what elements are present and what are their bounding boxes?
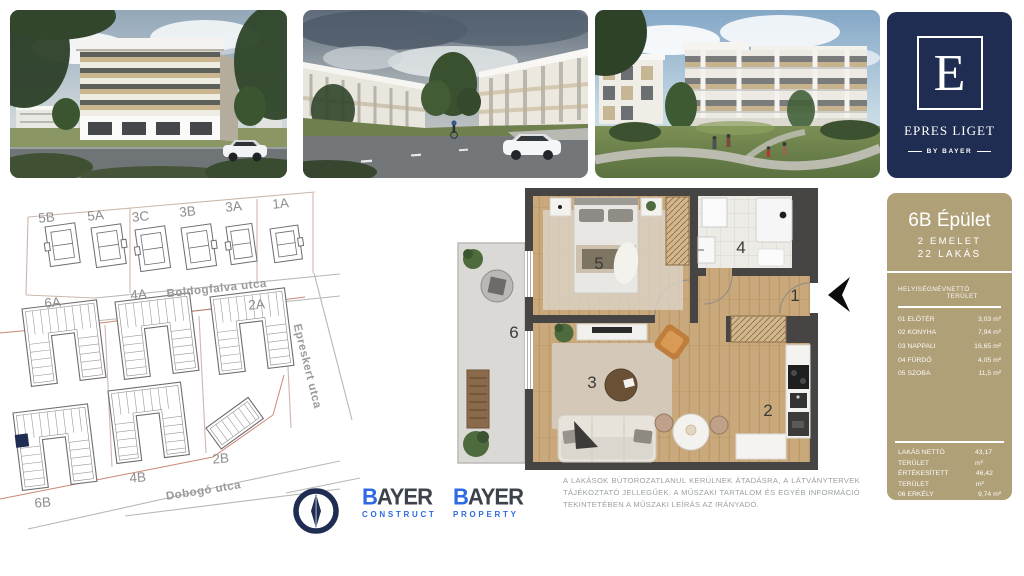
bayer-construct-logo: BAYER CONSTRUCT <box>362 486 437 519</box>
room-area: 7,94 m² <box>978 326 1001 340</box>
svg-text:Dobogó utca: Dobogó utca <box>165 479 242 503</box>
svg-text:4: 4 <box>736 238 745 257</box>
highlighted-unit-marker <box>15 433 29 447</box>
svg-text:1A: 1A <box>272 195 290 212</box>
bayer-construct-wordmark: BAYER <box>362 486 437 509</box>
room-name: 02 KONYHA <box>898 326 936 340</box>
room-area: 16,65 m² <box>974 340 1001 354</box>
disclaimer-text: A LAKÁSOK BÚTOROZATLANUL KERÜLNEK ÁTADÁS… <box>563 475 860 512</box>
summary-row: LAKÁS NETTÓ TERÜLET 43,17 m² <box>898 448 1001 469</box>
table-row: 05 SZOBA 11,5 m² <box>898 367 1001 381</box>
svg-text:4A: 4A <box>130 286 148 302</box>
svg-text:2B: 2B <box>212 450 230 466</box>
svg-text:3B: 3B <box>179 203 197 220</box>
summary-area: 9,74 m² <box>978 490 1001 501</box>
summary-table: LAKÁS NETTÓ TERÜLET 43,17 m² ÉRTÉKESÍTET… <box>898 448 1001 501</box>
entry-arrow-icon <box>828 277 850 312</box>
main-building <box>683 42 867 130</box>
room-area: 4,05 m² <box>978 354 1001 368</box>
table-row: 03 NAPPALI 16,65 m² <box>898 340 1001 354</box>
room-name: 05 SZOBA <box>898 367 931 381</box>
svg-text:5B: 5B <box>38 209 56 226</box>
brand-monogram-frame: E <box>917 36 983 110</box>
svg-text:6B: 6B <box>34 494 52 510</box>
brand-title: EPRES LIGET <box>887 123 1012 139</box>
building-footprints-small <box>42 223 305 272</box>
unit-data-panel: 6B Épület 2 EMELET 22 LAKÁS HELYISÉGNÉV … <box>887 193 1012 500</box>
floorplan: 1 2 3 4 5 6 <box>440 185 860 480</box>
byline-rule-left <box>908 151 922 152</box>
apartment-building <box>76 38 238 142</box>
bedroom-furniture <box>543 197 689 310</box>
svg-text:3: 3 <box>587 373 596 392</box>
room-area: 3,03 m² <box>978 313 1001 327</box>
unit-count-line: 22 LAKÁS <box>898 249 1001 260</box>
table-row: 04 FÜRDŐ 4,05 m² <box>898 354 1001 368</box>
svg-text:Epreskert utca: Epreskert utca <box>291 323 324 410</box>
brand-byline: BY BAYER <box>887 148 1012 155</box>
svg-text:5A: 5A <box>87 207 105 224</box>
summary-name: ÉRTÉKESÍTETT TERÜLET <box>898 469 976 490</box>
svg-text:2A: 2A <box>248 296 266 312</box>
byline-rule-right <box>977 151 991 152</box>
panel-divider-bottom <box>895 441 1004 443</box>
room-area: 11,5 m² <box>978 367 1001 381</box>
render-photo-street-view <box>303 10 588 178</box>
bayer-property-division: PROPERTY <box>453 511 523 519</box>
room-table-header-rule <box>898 306 1001 308</box>
building-footprint-6b <box>12 404 97 491</box>
summary-row: 06 ERKÉLY 9,74 m² <box>898 490 1001 501</box>
bayer-rest: AYER <box>377 484 432 510</box>
summary-area: 46,42 m² <box>976 469 1001 490</box>
svg-text:6: 6 <box>509 323 518 342</box>
room-table: 01 ELŐTÉR 3,03 m² 02 KONYHA 7,94 m² 03 N… <box>898 313 1001 382</box>
balcony <box>458 243 525 463</box>
svg-text:1: 1 <box>790 286 799 305</box>
unit-building-title: 6B Épület <box>898 210 1001 232</box>
room-table-header-area: NETTÓ TERÜLET <box>946 286 1001 300</box>
room-table-header: HELYISÉGNÉV NETTÓ TERÜLET <box>898 286 1001 300</box>
svg-text:3A: 3A <box>225 198 243 215</box>
bayer-property-logo: BAYER PROPERTY <box>453 486 523 519</box>
summary-area: 43,17 m² <box>975 448 1001 469</box>
summary-name: LAKÁS NETTÓ TERÜLET <box>898 448 975 469</box>
table-row: 02 KONYHA 7,94 m² <box>898 326 1001 340</box>
room-name: 04 FÜRDŐ <box>898 354 932 368</box>
render-photo-building-corner <box>10 10 287 178</box>
panel-divider-top <box>887 271 1012 273</box>
svg-text:5: 5 <box>594 254 603 273</box>
brand-monogram-letter: E <box>934 48 966 100</box>
brochure-page: E EPRES LIGET BY BAYER <box>0 0 1024 576</box>
table-row: 01 ELŐTÉR 3,03 m² <box>898 313 1001 327</box>
svg-text:6A: 6A <box>44 294 62 310</box>
building-footprints-u <box>12 288 294 491</box>
svg-text:3C: 3C <box>131 208 150 225</box>
bayer-initial: B <box>453 484 468 510</box>
svg-text:2: 2 <box>763 401 772 420</box>
bayer-property-wordmark: BAYER <box>453 486 523 509</box>
room-table-header-name: HELYISÉGNÉV <box>898 286 946 300</box>
bayer-construct-division: CONSTRUCT <box>362 511 437 519</box>
room-name: 01 ELŐTÉR <box>898 313 935 327</box>
room-name: 03 NAPPALI <box>898 340 936 354</box>
hall-furniture <box>731 316 786 342</box>
bayer-rest: AYER <box>468 484 523 510</box>
unit-floor-line: 2 EMELET <box>898 236 1001 247</box>
svg-text:4B: 4B <box>129 469 147 485</box>
summary-row: ÉRTÉKESÍTETT TERÜLET 46,42 m² <box>898 469 1001 490</box>
bayer-initial: B <box>362 484 377 510</box>
summary-name: 06 ERKÉLY <box>898 490 934 501</box>
compass-icon <box>291 486 341 536</box>
byline-text: BY BAYER <box>927 148 973 155</box>
render-photo-courtyard <box>595 10 880 178</box>
brand-logo-panel: E EPRES LIGET BY BAYER <box>887 12 1012 178</box>
lawn <box>595 120 880 178</box>
